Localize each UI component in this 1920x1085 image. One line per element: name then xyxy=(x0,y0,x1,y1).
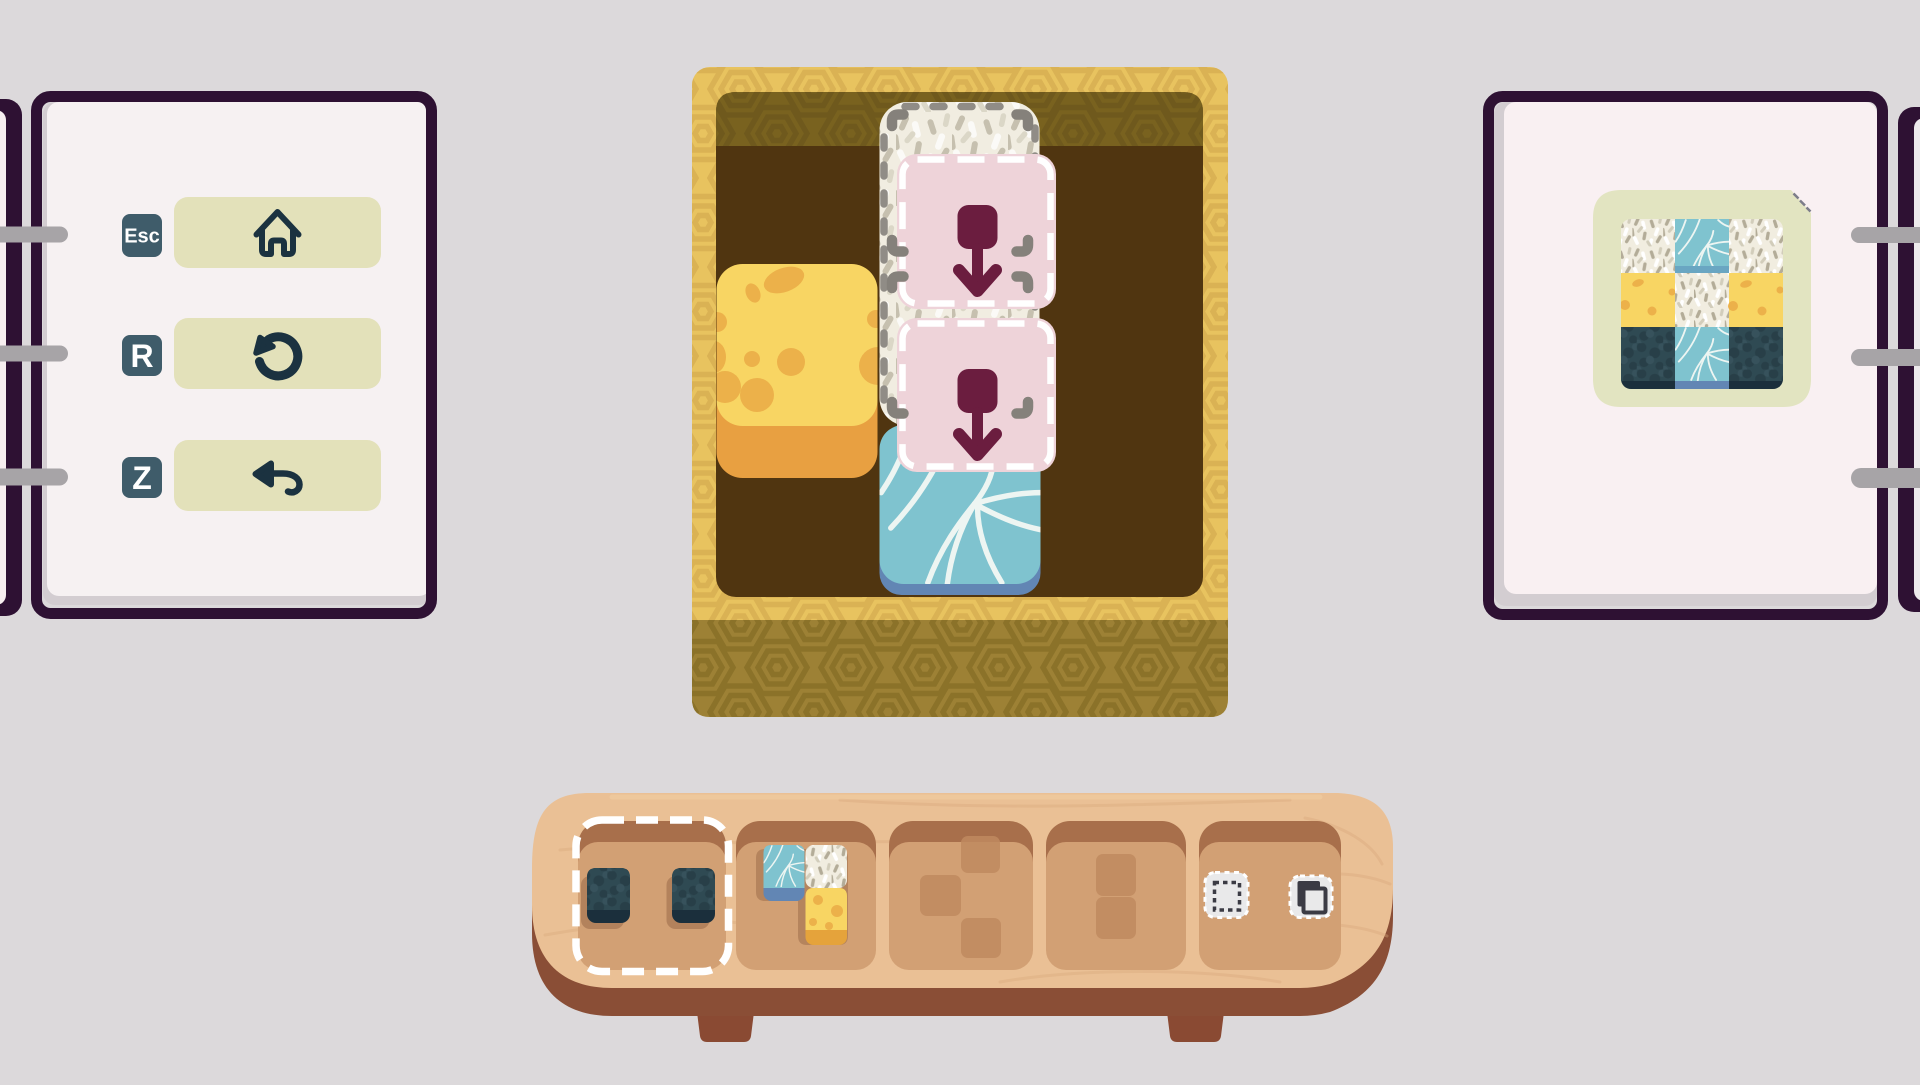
svg-text:Esc: Esc xyxy=(124,226,160,248)
svg-text:Z: Z xyxy=(132,460,152,496)
svg-text:R: R xyxy=(130,338,153,374)
